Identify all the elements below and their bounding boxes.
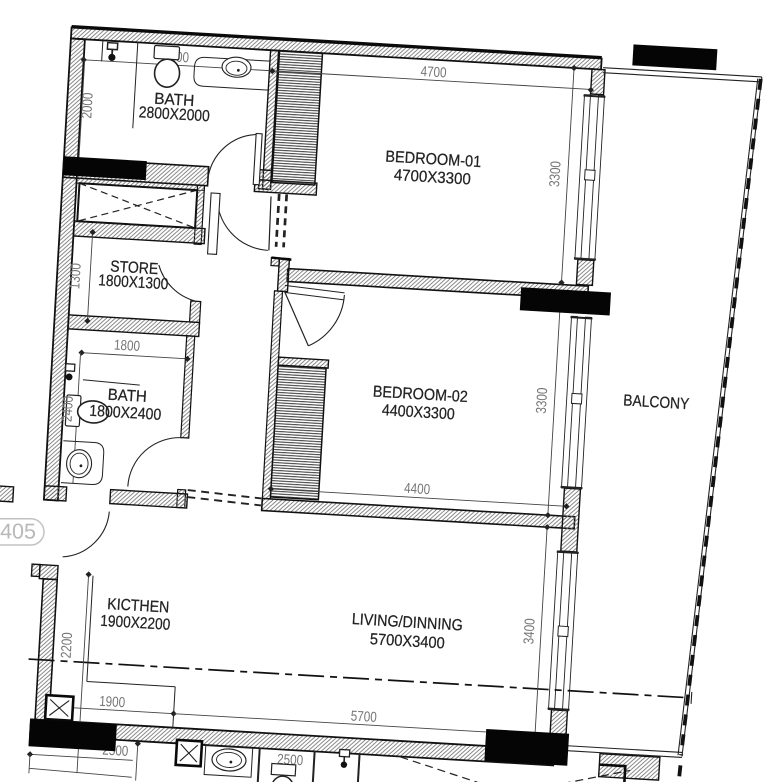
svg-text:405: 405 bbox=[0, 520, 36, 544]
svg-text:2200: 2200 bbox=[59, 632, 76, 659]
svg-text:2000: 2000 bbox=[79, 92, 96, 119]
svg-text:3300: 3300 bbox=[547, 161, 564, 188]
svg-text:4400: 4400 bbox=[404, 481, 431, 498]
svg-text:BATH: BATH bbox=[107, 387, 147, 406]
svg-text:4700: 4700 bbox=[420, 64, 447, 81]
svg-text:3400: 3400 bbox=[521, 618, 538, 645]
svg-text:1800: 1800 bbox=[114, 338, 141, 355]
svg-text:5700: 5700 bbox=[350, 709, 377, 726]
svg-text:3300: 3300 bbox=[534, 387, 551, 414]
svg-text:2400: 2400 bbox=[60, 396, 77, 423]
svg-text:1300: 1300 bbox=[67, 263, 84, 290]
svg-text:1900: 1900 bbox=[99, 694, 126, 711]
